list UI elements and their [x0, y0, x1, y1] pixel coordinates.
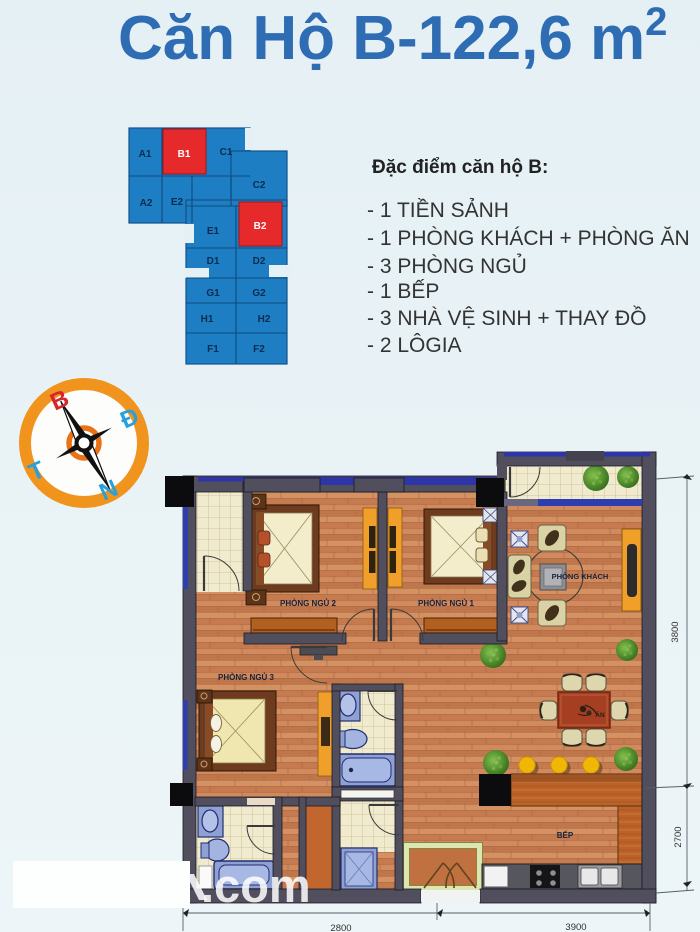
svg-text:- 1 BẾP: - 1 BẾP	[367, 280, 439, 303]
svg-text:- 1 TIỀN SẢNH: - 1 TIỀN SẢNH	[367, 199, 509, 222]
svg-text:F1: F1	[207, 344, 219, 355]
svg-text:F2: F2	[253, 344, 265, 355]
svg-text:G2: G2	[252, 288, 266, 299]
svg-text:Căn Hộ B-122,6 m2: Căn Hộ B-122,6 m2	[118, 0, 667, 73]
svg-text:3900: 3900	[565, 922, 586, 932]
svg-text:.com: .com	[201, 859, 311, 912]
svg-text:2800: 2800	[330, 923, 351, 932]
svg-text:- 1 PHÒNG KHÁCH + PHÒNG ĂN: - 1 PHÒNG KHÁCH + PHÒNG ĂN	[367, 227, 690, 250]
svg-text:B1: B1	[178, 149, 191, 160]
svg-text:E2: E2	[171, 197, 184, 208]
svg-text:D2: D2	[253, 256, 266, 267]
svg-text:ĂN: ĂN	[595, 710, 605, 719]
svg-text:Đặc điểm căn hộ B:: Đặc điểm căn hộ B:	[372, 157, 548, 178]
svg-text:E1: E1	[207, 226, 220, 237]
svg-text:3800: 3800	[670, 621, 681, 642]
svg-text:BẾP: BẾP	[557, 830, 574, 840]
svg-text:PHÒNG KHÁCH: PHÒNG KHÁCH	[552, 572, 609, 581]
svg-text:- 2 LÔGIA: - 2 LÔGIA	[367, 334, 462, 357]
svg-text:C1: C1	[220, 147, 233, 158]
svg-text:A1: A1	[139, 149, 152, 160]
svg-text:G1: G1	[206, 288, 220, 299]
svg-text:H2: H2	[258, 314, 271, 325]
svg-text:2700: 2700	[673, 826, 684, 847]
svg-text:H1: H1	[201, 314, 214, 325]
svg-text:PHÒNG NGỦ 1: PHÒNG NGỦ 1	[418, 599, 475, 608]
svg-text:C2: C2	[253, 180, 266, 191]
svg-text:PHÒNG NGỦ 2: PHÒNG NGỦ 2	[280, 599, 337, 608]
svg-text:B2: B2	[254, 221, 267, 232]
svg-text:A2: A2	[140, 198, 153, 209]
svg-text:- 3 PHÒNG NGỦ: - 3 PHÒNG NGỦ	[367, 254, 527, 278]
svg-text:PHÒNG NGỦ 3: PHÒNG NGỦ 3	[218, 673, 275, 682]
svg-text:- 3 NHÀ VỆ SINH + THAY ĐỒ: - 3 NHÀ VỆ SINH + THAY ĐỒ	[367, 306, 647, 330]
svg-text:D1: D1	[207, 256, 220, 267]
